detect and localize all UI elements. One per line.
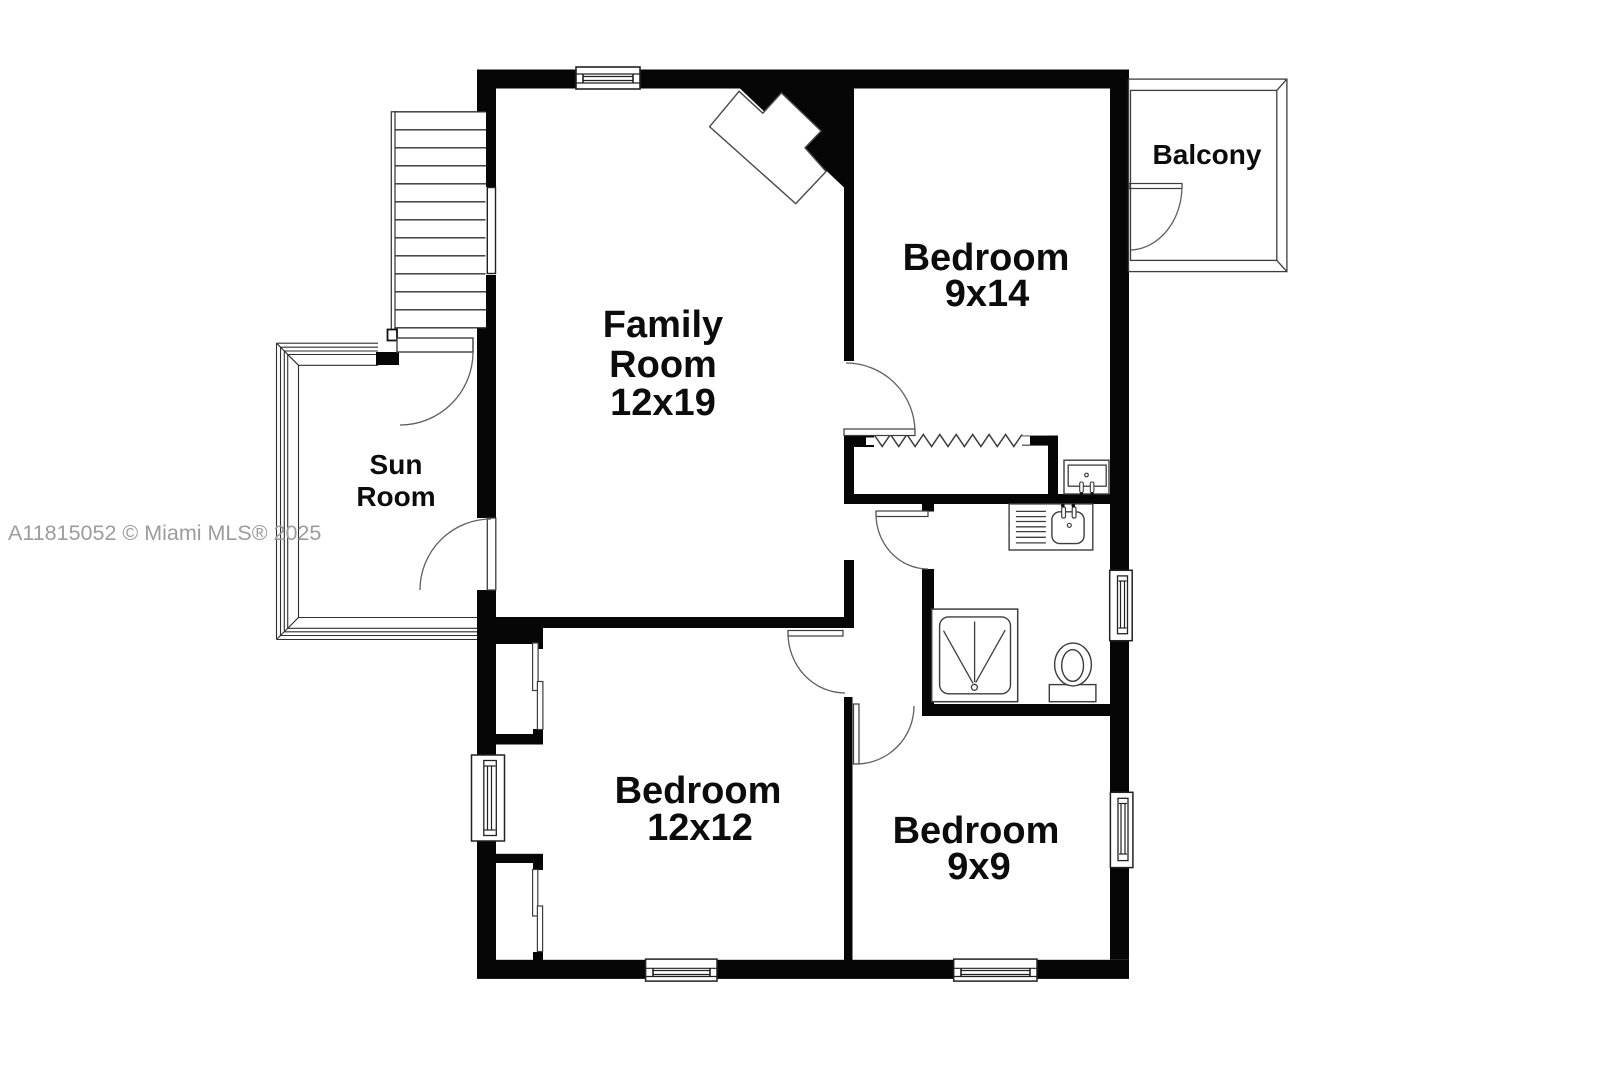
svg-text:Bedroom: Bedroom	[615, 770, 782, 812]
svg-text:Room: Room	[356, 481, 435, 512]
svg-text:12x19: 12x19	[610, 382, 716, 424]
svg-text:9x14: 9x14	[945, 273, 1030, 315]
svg-text:Family: Family	[603, 304, 723, 346]
svg-text:12x12: 12x12	[647, 807, 753, 849]
svg-text:A11815052 © Miami MLS® 2025: A11815052 © Miami MLS® 2025	[8, 521, 321, 545]
svg-text:Sun: Sun	[370, 449, 423, 480]
svg-text:Balcony: Balcony	[1153, 139, 1262, 170]
svg-text:9x9: 9x9	[947, 846, 1010, 888]
svg-text:Room: Room	[609, 344, 717, 386]
